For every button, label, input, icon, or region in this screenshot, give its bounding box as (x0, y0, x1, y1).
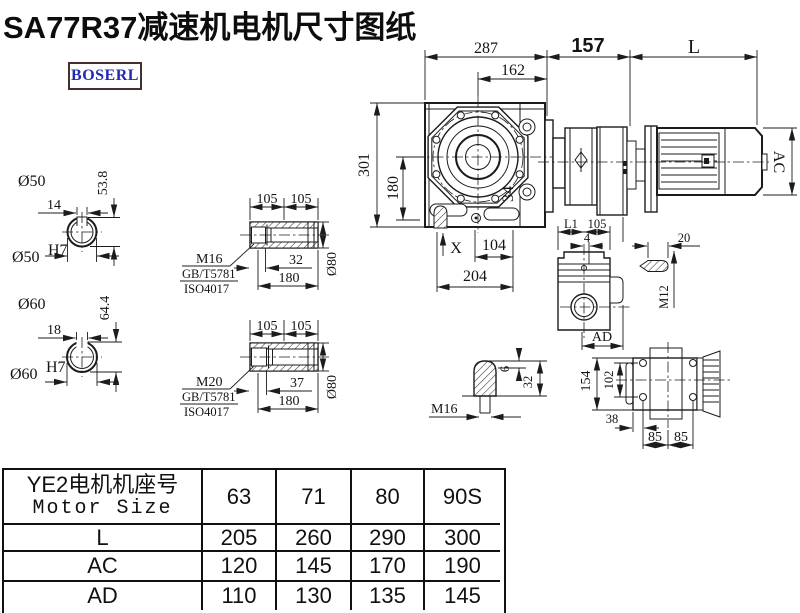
bottomview-dim-154: 154 (579, 371, 594, 392)
value-AD-63: 110 (203, 582, 277, 610)
oil-plug (434, 206, 447, 228)
table-header-cell: YE2电机机座号 Motor Size (4, 470, 203, 525)
bushing1-dim-105-left: 105 (257, 192, 278, 207)
shaft-bore-60-view: Ø60 18 64.4 Ø60 H7 (10, 296, 122, 392)
bottomview-dim-38: 38 (606, 412, 619, 426)
frame-size-63: 63 (203, 470, 277, 525)
sideview-dim-AD: AD (592, 330, 612, 345)
shaft60-keyway-height: 64.4 (98, 296, 113, 321)
bushing1-std-iso: ISO4017 (184, 282, 229, 296)
bushing2-bolt-label: M20 (196, 375, 222, 390)
frame-size-90S: 90S (425, 470, 500, 525)
sideview-dim-4: 4 (584, 231, 591, 245)
bushing1-dim-32: 32 (289, 253, 303, 268)
shaftend-thread-M16: M16 (431, 402, 457, 417)
row-label-L: L (4, 525, 203, 552)
dim-180-label: 180 (385, 176, 402, 200)
bushing2-std-gb: GB/T5781 (182, 390, 235, 404)
row-label-AC: AC (4, 552, 203, 582)
dim-X-label: X (450, 240, 462, 257)
bushing1-bolt-label: M16 (196, 252, 222, 267)
shaftend-dim-6: 6 (498, 366, 512, 372)
bushing1-dim-180: 180 (279, 271, 300, 286)
shaft-end-detail: M16 6 32 (429, 350, 547, 417)
key-dim-20: 20 (678, 231, 691, 245)
shaft60-bore-tolerance: H7 (46, 359, 66, 376)
shaft50-keyway-height: 53.8 (96, 171, 111, 196)
bottomview-dim-85-right: 85 (674, 430, 688, 445)
bushing-m20-view: 105 105 M20 GB/T5781 ISO4017 37 180 Ø80 (180, 319, 340, 419)
shaft50-label: Ø50 (18, 173, 46, 190)
value-L-80: 290 (352, 525, 425, 552)
table-header-cn: YE2电机机座号 (27, 472, 179, 497)
bushing-m16-view: 105 105 M16 GB/T5781 ISO4017 32 180 Ø80 (180, 192, 340, 296)
bushing1-std-gb: GB/T5781 (182, 267, 235, 281)
gearbox-side-view: L1 105 4 AD (558, 217, 632, 350)
dim-34-label: 34 (500, 186, 517, 202)
shaft50-bore-label: Ø50 (12, 249, 40, 266)
motor-size-table: YE2电机机座号 Motor Size 63 71 80 90S L 205 2… (2, 468, 506, 613)
bushing2-std-iso: ISO4017 (184, 405, 229, 419)
key-detail-view: 20 M12 (623, 217, 700, 309)
bottomview-dim-102: 102 (602, 371, 616, 390)
bushing2-dim-105-right: 105 (291, 319, 312, 334)
bushing2-dim-dia: Ø80 (325, 375, 340, 399)
value-AC-71: 145 (277, 552, 352, 582)
dim-L-label: L (688, 36, 700, 58)
bushing2-dim-37: 37 (290, 376, 304, 391)
bottomview-dim-85-left: 85 (648, 430, 662, 445)
value-AC-80: 170 (352, 552, 425, 582)
shaft60-label: Ø60 (18, 296, 46, 313)
shaft50-keyway-width: 14 (47, 198, 61, 213)
bushing2-dim-105-left: 105 (257, 319, 278, 334)
value-L-71: 260 (277, 525, 352, 552)
sideview-dim-L1: L1 (564, 217, 578, 231)
dim-287-label: 287 (474, 40, 498, 57)
key-thread-M12: M12 (657, 285, 671, 309)
value-L-90S: 300 (425, 525, 500, 552)
shaft60-bore-label: Ø60 (10, 366, 38, 383)
shaft60-keyway-width: 18 (47, 323, 61, 338)
value-AC-63: 120 (203, 552, 277, 582)
frame-size-80: 80 (352, 470, 425, 525)
bushing1-dim-105-right: 105 (291, 192, 312, 207)
dim-204-label: 204 (463, 268, 487, 285)
bushing2-dim-180: 180 (279, 394, 300, 409)
drawing-page: SA77R37减速机电机尺寸图纸 BOSERL (0, 0, 800, 613)
dim-104-label: 104 (482, 237, 506, 254)
value-AD-71: 130 (277, 582, 352, 610)
dim-AC-label: AC (770, 151, 787, 173)
dim-157-label: 157 (571, 35, 604, 57)
sideview-dim-105: 105 (588, 217, 607, 231)
value-AD-90S: 145 (425, 582, 500, 610)
shaft50-bore-tolerance: H7 (48, 242, 68, 259)
row-label-AD: AD (4, 582, 203, 610)
value-L-63: 205 (203, 525, 277, 552)
value-AD-80: 135 (352, 582, 425, 610)
bushing1-dim-dia: Ø80 (325, 252, 340, 276)
frame-size-71: 71 (277, 470, 352, 525)
shaft-bore-50-view: Ø50 14 53.8 Ø50 H7 (12, 171, 120, 266)
value-AC-90S: 190 (425, 552, 500, 582)
dim-162-label: 162 (501, 62, 525, 79)
gearbox-bottom-view: 154 102 38 85 85 (579, 342, 730, 449)
table-header-en: Motor Size (32, 497, 172, 521)
dim-301-label: 301 (356, 153, 373, 177)
shaftend-dim-32: 32 (521, 376, 535, 389)
